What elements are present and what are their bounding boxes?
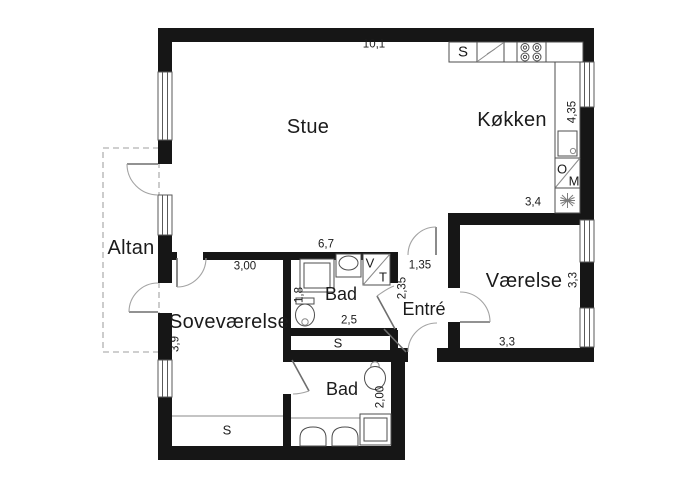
dim-kokken-width: 3,4: [525, 197, 541, 209]
window-kokken: [580, 62, 594, 107]
shower-icon: [360, 414, 391, 445]
door-altan-sovevaerelse: [129, 283, 158, 312]
dim-kokken-depth: 4,35: [567, 101, 579, 123]
room-label-sovevaerelse: Soveværelse: [169, 312, 289, 332]
dim-vaerelse-width: 3,3: [499, 337, 515, 349]
double-washbasin-icon: [300, 427, 358, 446]
washbasin-icon: [336, 254, 361, 277]
room-label-bad-upper: Bad: [325, 285, 357, 303]
door-bad-lower: [292, 360, 309, 394]
ventilation-fan-icon: [555, 188, 580, 213]
kitchen-sink-label: S: [458, 45, 468, 60]
bedroom-closet-label: S: [223, 424, 232, 437]
room-label-stue: Stue: [287, 117, 329, 137]
room-label-entre: Entré: [402, 300, 445, 318]
dim-sovevaerelse-width: 3,00: [234, 261, 256, 273]
dim-overall-top: 10,1: [363, 39, 385, 51]
door-sovevaerelse: [177, 258, 206, 287]
door-entre-stue: [408, 227, 436, 255]
dim-bad-upper-width: 2,5: [341, 315, 357, 327]
washer-label: V: [366, 257, 375, 270]
window-sovevaerelse: [158, 360, 172, 397]
microwave-label: M: [569, 175, 580, 188]
dim-vaerelse-depth: 3,3: [568, 272, 580, 288]
dim-bad-lower-depth: 2,00: [375, 386, 387, 408]
room-label-kokken: Køkken: [477, 110, 547, 130]
door-bad-upper: [377, 286, 395, 329]
floor-plan-drawing: [0, 0, 700, 500]
window-stue-left: [158, 72, 172, 140]
window-vaerelse-1: [580, 220, 594, 262]
oven-label: O: [557, 163, 567, 176]
dryer-label: T: [379, 271, 387, 284]
dim-entre-width: 1,35: [409, 260, 431, 272]
window-vaerelse-2: [580, 308, 594, 347]
dim-stue-width: 6,7: [318, 239, 334, 251]
door-altan-stue: [127, 164, 158, 195]
door-vaerelse: [460, 292, 490, 322]
floor-plan: Stue Køkken Værelse Soveværelse Altan En…: [0, 0, 700, 500]
dim-entre-depth: 2,35: [397, 277, 409, 299]
room-label-altan: Altan: [107, 238, 154, 258]
window-altan-mid: [158, 195, 172, 235]
kitchen-sink-unit-icon: [558, 131, 577, 156]
hall-closet-label: S: [334, 337, 343, 350]
room-label-vaerelse: Værelse: [486, 271, 563, 291]
dim-bad-upper-depth: 1,8: [294, 287, 306, 303]
dim-sovevaerelse-depth: 3,9: [170, 336, 182, 352]
room-label-bad-lower: Bad: [326, 380, 358, 398]
